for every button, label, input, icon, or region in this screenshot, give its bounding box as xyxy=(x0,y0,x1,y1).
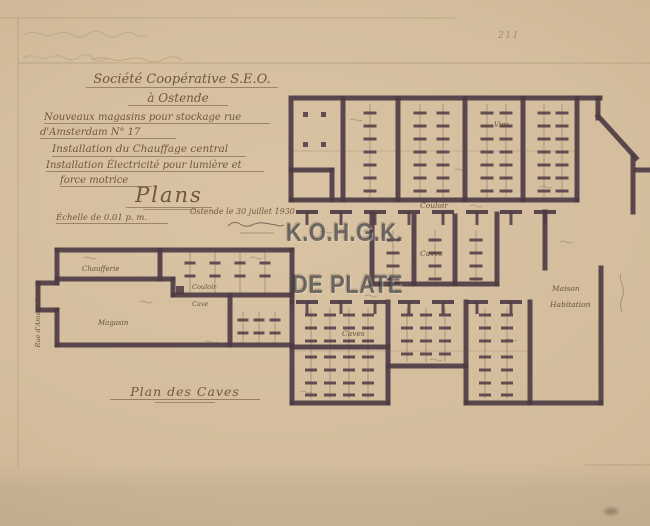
title-line-project1: Nouveaux magasins pour stockage rue xyxy=(44,112,270,124)
plan-label-caves-mid: Caves xyxy=(420,249,443,258)
plan-label-chaufferie: Chaufferie xyxy=(82,265,119,273)
plan-label-cave: Cave xyxy=(192,300,209,308)
archive-number: 211 xyxy=(498,31,520,41)
plan-label-street: Rue d'Amsterdam xyxy=(34,289,42,349)
plan-label-vins: Vins xyxy=(494,121,510,129)
watermark-line2: DE PLATE xyxy=(292,270,403,299)
plan-label-couloir: Couloir xyxy=(420,201,448,210)
watermark-line1: K.O.H.G.K. xyxy=(286,218,403,247)
title-line-project2: d'Amsterdam N° 17 xyxy=(40,127,176,139)
title-line-electric1: Installation Électricité pour lumière et xyxy=(46,160,264,172)
plan-label-couloir-wing: Couloir xyxy=(192,283,217,291)
plan-label-magasin: Magasin xyxy=(97,319,129,327)
plan-label-habitation: Habitation xyxy=(549,300,591,309)
title-line-company: Société Coopérative S.E.O. xyxy=(86,73,278,88)
plan-label-caves-low: Caves xyxy=(342,329,365,338)
title-place-date: Ostende le 30 juillet 1930 xyxy=(190,208,308,217)
title-line-city: à Ostende xyxy=(128,92,228,106)
title-line-heating: Installation du Chauffage central xyxy=(52,144,246,157)
plan-label-maison: Maison xyxy=(551,284,580,293)
sheet-caption: Plan des Caves xyxy=(110,384,260,400)
title-scale: Échelle de 0.01 p. m. xyxy=(56,214,168,224)
ink-smudge xyxy=(604,508,618,515)
scanned-plan-sheet: Vins Couloir Caves Caves Chaufferie Maga… xyxy=(0,0,650,526)
title-plans: Plans xyxy=(126,184,212,208)
